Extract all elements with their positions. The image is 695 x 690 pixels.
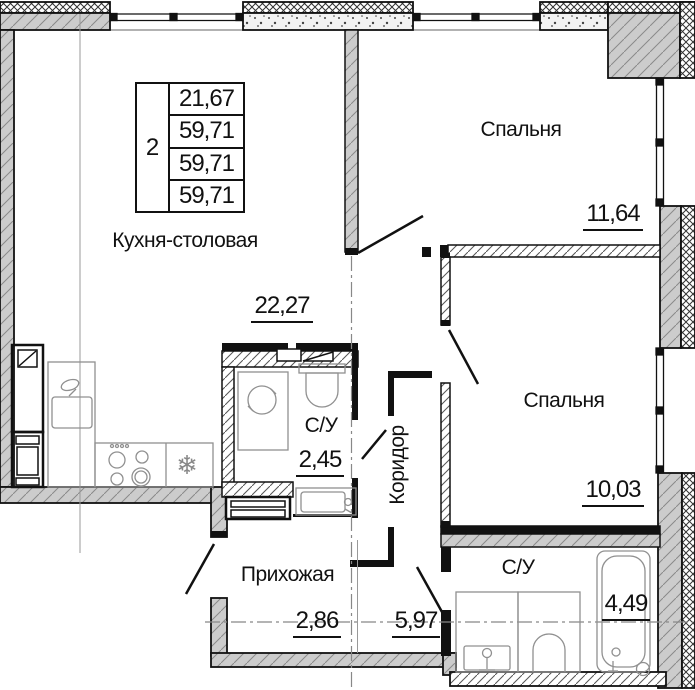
- area-value: 2,45: [296, 446, 345, 477]
- room-label-bedroom2: Спальня: [499, 389, 629, 413]
- area-value: 2,86: [293, 607, 342, 638]
- area-value: 11,64: [583, 200, 642, 231]
- plan-linework: ❄: [0, 0, 695, 690]
- room-area-kitchen: 22,27: [243, 292, 321, 323]
- kitchen-counter: [48, 362, 95, 487]
- toilet-icon: [518, 592, 580, 672]
- table-cell: 59,71: [170, 114, 243, 146]
- room-area-bedroom2: 10,03: [578, 476, 648, 507]
- room-area-hallway: 2,86: [289, 607, 345, 638]
- vent-shaft-unit: [12, 345, 43, 487]
- summary-values: 21,67 59,71 59,71 59,71: [170, 84, 243, 211]
- area-value: 4,49: [602, 590, 651, 621]
- stove-icon: [109, 445, 150, 487]
- washing-machine-icon: [238, 372, 288, 450]
- table-cell: 59,71: [170, 147, 243, 179]
- room-label-bathroom2: С/У: [490, 556, 546, 580]
- summary-table: 2 21,67 59,71 59,71 59,71: [135, 82, 245, 213]
- window-bedroom1-top: [413, 14, 540, 21]
- window-bedroom1-right: [656, 78, 664, 206]
- room-label-corridor: Коридор: [386, 425, 410, 504]
- door-swing-entrance: [186, 544, 214, 594]
- fridge-icon: ❄: [176, 450, 198, 480]
- kitchen-sink-icon: [52, 377, 92, 428]
- door-swing-bathroom2: [417, 567, 442, 612]
- sink-icon: [296, 488, 356, 515]
- table-cell: 21,67: [170, 84, 243, 114]
- floor-plan: ❄: [0, 0, 695, 690]
- door-swing-bedroom2: [449, 330, 478, 384]
- room-area-bathroom1: 2,45: [287, 446, 353, 477]
- room-area-bathroom2: 4,49: [595, 590, 657, 621]
- toilet-icon: [299, 364, 345, 407]
- door-swing-bedroom1: [358, 216, 423, 253]
- table-cell: 59,71: [170, 179, 243, 211]
- area-value: 5,97: [392, 607, 441, 638]
- window-kitchen-top: [110, 14, 243, 21]
- room-label-hallway: Прихожая: [230, 563, 345, 587]
- room-area-corridor: 5,97: [388, 607, 444, 638]
- area-value: 10,03: [582, 476, 643, 507]
- duct-box-icon: [226, 497, 290, 519]
- door-swing-bathroom1: [362, 430, 386, 459]
- kitchen-fixtures: ❄: [12, 345, 213, 487]
- rooms-count: 2: [137, 84, 170, 211]
- room-label-bedroom1: Спальня: [456, 118, 586, 142]
- window-bedroom2-right: [656, 348, 664, 473]
- room-area-bedroom1: 11,64: [578, 200, 648, 231]
- room-label-kitchen: Кухня-столовая: [85, 229, 285, 253]
- vanity-sink-icon: [456, 592, 518, 672]
- area-value: 22,27: [251, 292, 312, 323]
- room-label-bathroom1: С/У: [293, 414, 349, 438]
